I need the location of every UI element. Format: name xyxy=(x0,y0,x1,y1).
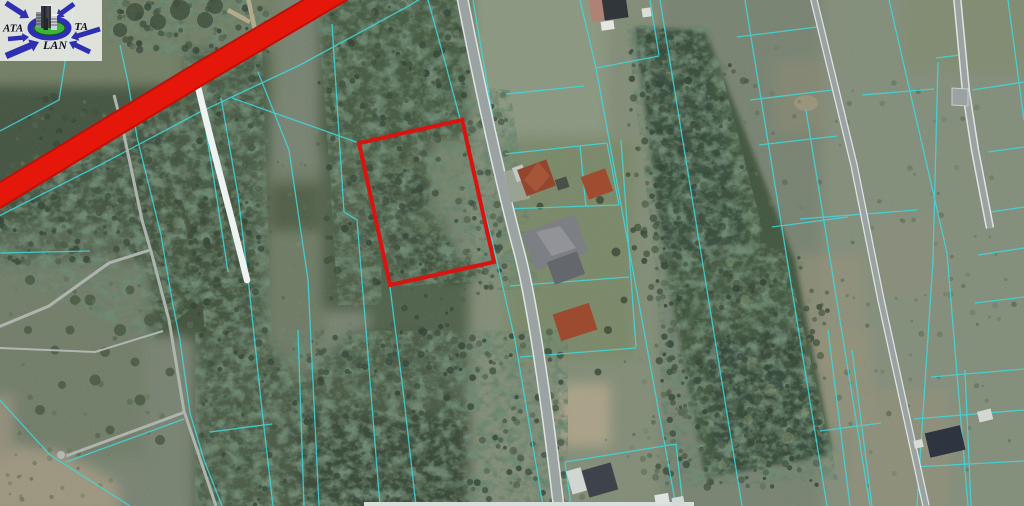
svg-text:TA: TA xyxy=(75,21,88,33)
svg-text:LAN: LAN xyxy=(42,38,68,52)
svg-text:ATA: ATA xyxy=(2,23,23,35)
